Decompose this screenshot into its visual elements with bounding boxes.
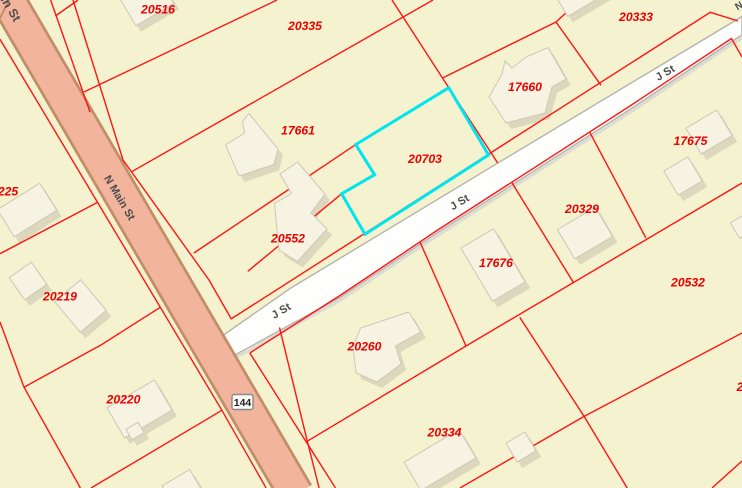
- svg-text:17675: 17675: [674, 134, 708, 148]
- svg-text:17660: 17660: [508, 80, 542, 94]
- svg-text:20334: 20334: [427, 426, 462, 440]
- svg-text:20335: 20335: [287, 19, 322, 33]
- svg-text:20703: 20703: [407, 152, 442, 166]
- svg-text:225: 225: [0, 185, 18, 199]
- svg-text:20333: 20333: [618, 10, 653, 24]
- svg-text:20260: 20260: [347, 340, 382, 354]
- svg-text:17676: 17676: [479, 256, 513, 270]
- svg-text:144: 144: [234, 397, 252, 409]
- svg-text:20329: 20329: [564, 202, 599, 216]
- svg-text:20219: 20219: [42, 290, 77, 304]
- svg-text:2: 2: [736, 380, 742, 394]
- svg-text:20220: 20220: [106, 393, 141, 407]
- svg-text:20516: 20516: [140, 3, 175, 17]
- svg-text:20532: 20532: [670, 276, 705, 290]
- svg-text:17661: 17661: [281, 124, 315, 138]
- svg-text:20552: 20552: [270, 232, 305, 246]
